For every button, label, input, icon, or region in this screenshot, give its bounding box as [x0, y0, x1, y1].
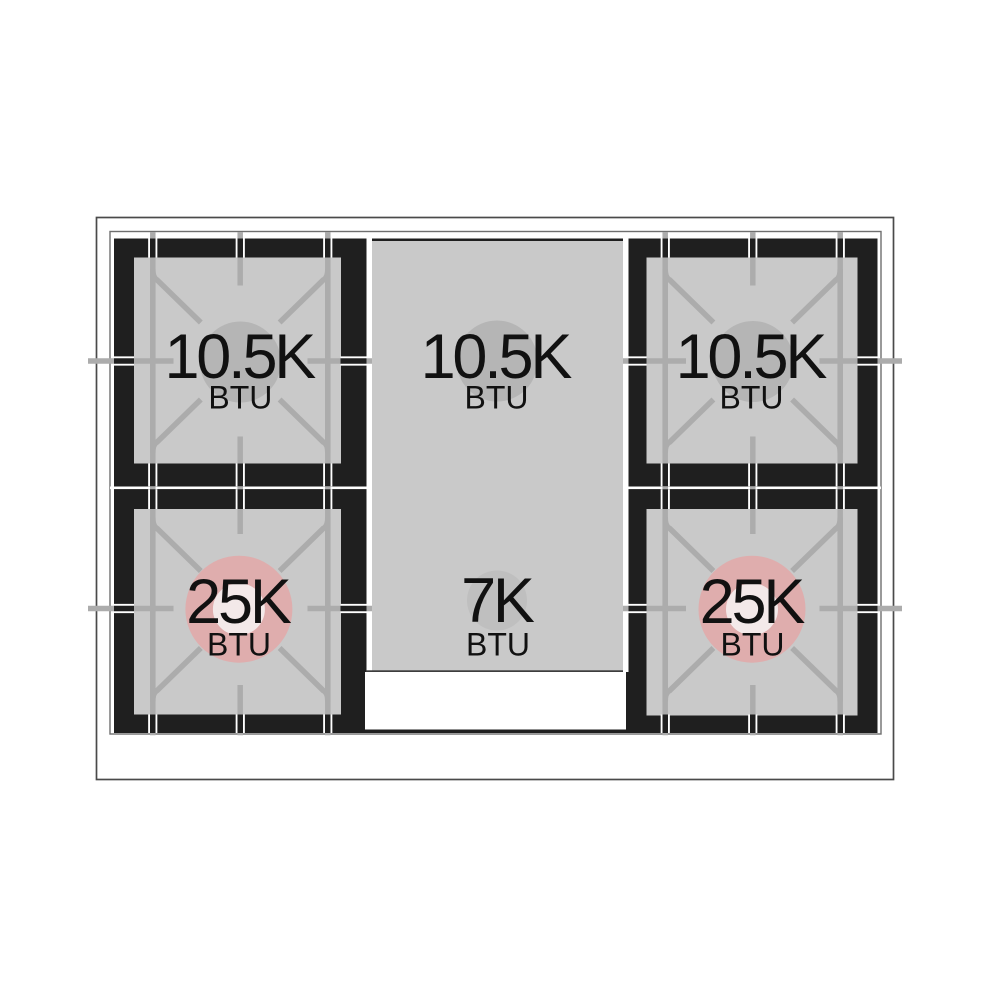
- svg-text:BTU: BTU: [721, 627, 785, 663]
- svg-text:7K: 7K: [461, 566, 535, 636]
- svg-text:BTU: BTU: [207, 627, 271, 663]
- svg-text:BTU: BTU: [720, 380, 784, 416]
- svg-text:BTU: BTU: [465, 380, 529, 416]
- svg-text:BTU: BTU: [466, 627, 530, 663]
- svg-text:BTU: BTU: [208, 380, 272, 416]
